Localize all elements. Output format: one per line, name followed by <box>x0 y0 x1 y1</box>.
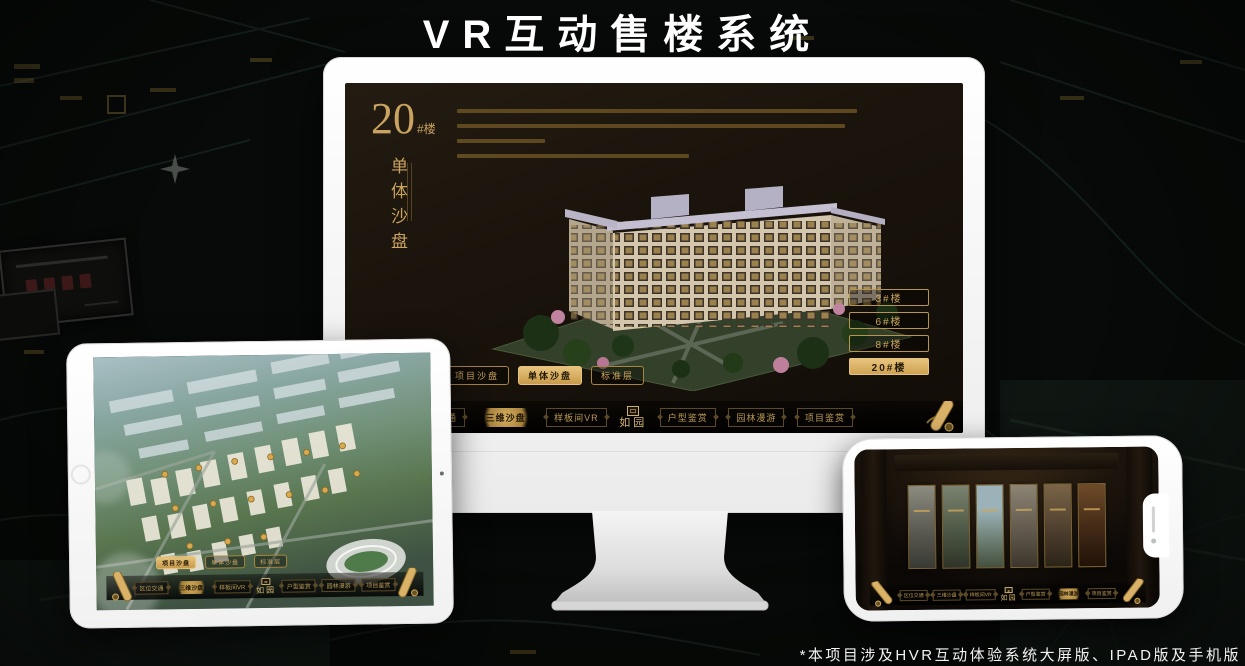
floor-selector: 3#楼 6#楼 8#楼 20#楼 <box>849 289 929 375</box>
heading-english-caption <box>407 163 412 221</box>
nav-item-3d-sandtable[interactable]: 三维沙盘 <box>933 589 961 600</box>
footnote-caption: *本项目涉及HVR互动体验系统大屏版、IPAD版及手机版 <box>800 644 1241 665</box>
brand-logo-text: 如园 <box>619 418 647 429</box>
floor-button-3[interactable]: 3#楼 <box>849 289 929 306</box>
nav-item-garden-roam[interactable]: 园林漫游 <box>1055 588 1083 599</box>
tablet-home-button[interactable] <box>71 464 91 484</box>
monitor-stand <box>540 511 780 619</box>
panorama-card-row <box>855 482 1160 569</box>
subtab-project-sandtable[interactable]: 项目沙盘 <box>445 366 509 385</box>
panorama-card[interactable] <box>1044 483 1073 567</box>
brand-logo: 如园 <box>619 406 647 429</box>
phone-screen: 区位交通 三维沙盘 样板间VR 如园 户型鉴赏 园林漫游 项目鉴赏 <box>854 446 1160 610</box>
nav-item-floorplan[interactable]: 户型鉴赏 <box>282 579 316 592</box>
scroll-handle-icon[interactable] <box>110 572 132 602</box>
page: 20#楼 单体沙盘 <box>0 0 1245 666</box>
nav-item-floorplan[interactable]: 户型鉴赏 <box>1022 588 1050 599</box>
phone-bottom-nav: 区位交通 三维沙盘 样板间VR 如园 户型鉴赏 园林漫游 项目鉴赏 <box>870 583 1146 606</box>
phone-notch <box>1143 493 1170 557</box>
panorama-card[interactable] <box>976 484 1005 568</box>
nav-item-location[interactable]: 区位交通 <box>900 589 928 600</box>
interior-beam <box>894 453 1118 471</box>
phone-device: 区位交通 三维沙盘 样板间VR 如园 户型鉴赏 园林漫游 项目鉴赏 <box>842 435 1184 622</box>
panorama-card[interactable] <box>942 484 971 568</box>
subtab-single-sandtable[interactable]: 单体沙盘 <box>518 366 582 385</box>
subtab-standard-floor[interactable]: 标准层 <box>591 366 644 385</box>
subtab-standard-floor[interactable]: 标准层 <box>254 555 287 568</box>
nav-item-3d-sandtable[interactable]: 三维沙盘 <box>174 580 208 593</box>
phone-speaker-icon <box>1152 507 1155 533</box>
brand-logo: 如园 <box>256 577 276 594</box>
phone-camera-icon <box>1151 539 1156 544</box>
nav-item-showroom-vr[interactable]: 样板间VR <box>214 580 251 594</box>
tablet-screen: 项目沙盘 单体沙盘 标准层 区位交通 三维沙盘 样板间VR 如园 户型鉴赏 园林… <box>93 353 433 611</box>
nav-item-garden-roam[interactable]: 园林漫游 <box>321 578 355 591</box>
tablet-bottom-nav: 区位交通 三维沙盘 样板间VR 如园 户型鉴赏 园林漫游 项目鉴赏 <box>106 572 423 600</box>
award-plaque-partial <box>0 289 60 342</box>
brand-logo-text: 如园 <box>256 586 276 594</box>
panorama-card[interactable] <box>1078 483 1107 567</box>
page-title: VR互动售楼系统 <box>0 2 1245 60</box>
nav-item-garden-roam[interactable]: 园林漫游 <box>728 408 784 427</box>
seal-icon <box>627 406 639 416</box>
floor-button-6[interactable]: 6#楼 <box>849 312 929 329</box>
scroll-handle-icon[interactable] <box>923 401 957 433</box>
tablet-device: 项目沙盘 单体沙盘 标准层 区位交通 三维沙盘 样板间VR 如园 户型鉴赏 园林… <box>66 338 454 628</box>
nav-item-project-view[interactable]: 项目鉴赏 <box>797 408 853 427</box>
seal-icon <box>261 577 270 584</box>
seal-icon <box>1005 587 1013 593</box>
scroll-handle-icon[interactable] <box>397 568 419 598</box>
building-heading: 20#楼 <box>371 97 436 141</box>
nav-item-showroom-vr[interactable]: 样板间VR <box>966 589 996 600</box>
floor-button-20[interactable]: 20#楼 <box>849 358 929 375</box>
nav-item-showroom-vr[interactable]: 样板间VR <box>546 408 607 427</box>
panorama-card[interactable] <box>1010 484 1039 568</box>
nav-item-floorplan[interactable]: 户型鉴赏 <box>660 408 716 427</box>
subtab-project-sandtable[interactable]: 项目沙盘 <box>156 556 196 570</box>
floor-button-8[interactable]: 8#楼 <box>849 335 929 352</box>
nav-item-project-view[interactable]: 项目鉴赏 <box>1088 587 1116 598</box>
tablet-camera-icon <box>440 471 444 475</box>
panorama-card[interactable] <box>908 485 937 569</box>
nav-item-3d-sandtable[interactable]: 三维沙盘 <box>478 408 534 427</box>
building-number: 20 <box>371 94 415 143</box>
monitor-sub-tabs: 项目沙盘 单体沙盘 标准层 <box>445 366 644 385</box>
nav-item-project-view[interactable]: 项目鉴赏 <box>361 578 395 591</box>
tablet-sub-tabs: 项目沙盘 单体沙盘 标准层 <box>156 555 287 570</box>
subtab-single-sandtable[interactable]: 单体沙盘 <box>205 555 245 569</box>
building-unit: #楼 <box>417 122 436 136</box>
brand-logo: 如园 <box>1001 586 1017 601</box>
brand-logo-text: 如园 <box>1001 594 1017 601</box>
nav-item-location[interactable]: 区位交通 <box>134 581 168 594</box>
